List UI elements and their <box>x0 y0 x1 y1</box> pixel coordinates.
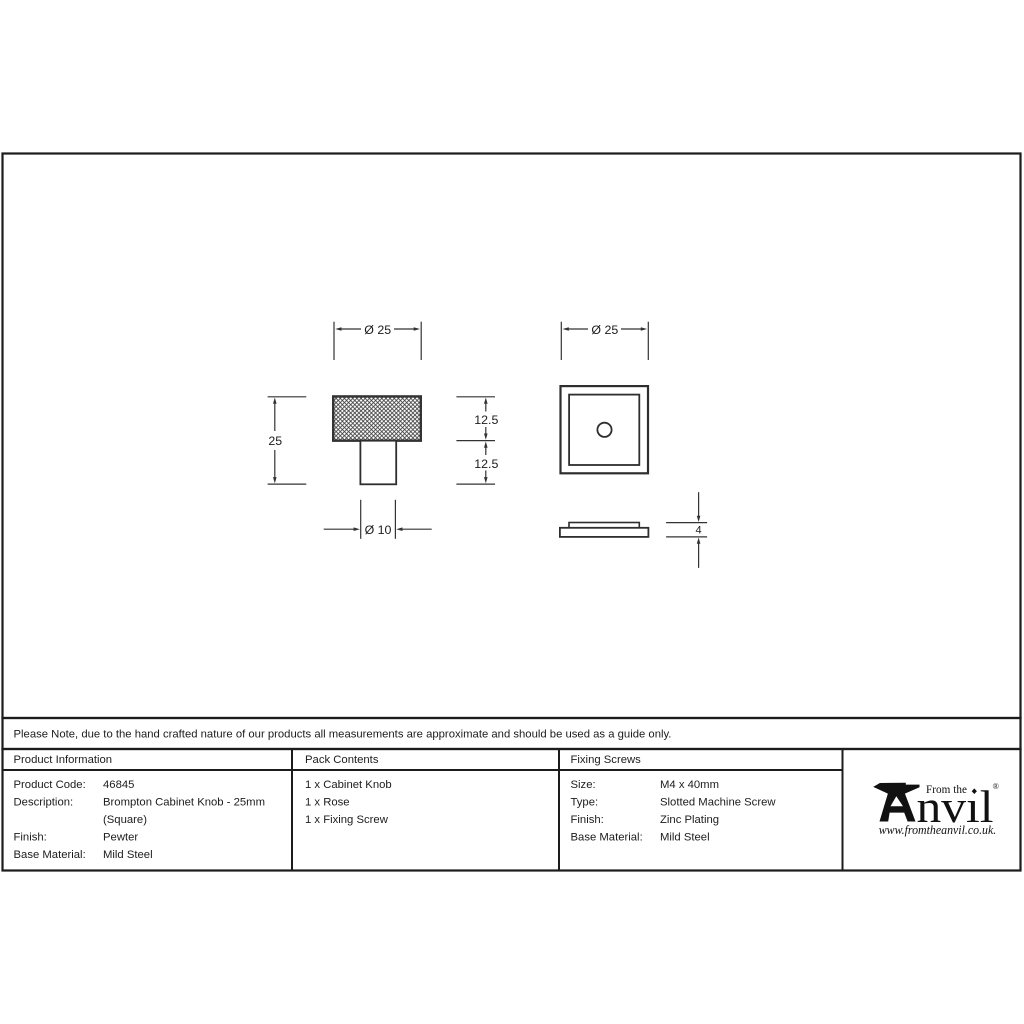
svg-text:Size:: Size: <box>571 779 596 791</box>
svg-text:Fixing Screws: Fixing Screws <box>571 754 642 766</box>
svg-text:1 x Rose: 1 x Rose <box>305 797 350 809</box>
svg-text:Mild Steel: Mild Steel <box>103 849 153 861</box>
svg-text:Description:: Description: <box>14 797 74 809</box>
svg-text:Finish:: Finish: <box>571 814 604 826</box>
svg-text:12.5: 12.5 <box>474 413 498 427</box>
svg-text:www.fromtheanvil.co.uk.: www.fromtheanvil.co.uk. <box>879 823 997 837</box>
svg-text:Type:: Type: <box>571 797 599 809</box>
svg-text:®: ® <box>993 781 1000 791</box>
svg-text:Base Material:: Base Material: <box>14 849 86 861</box>
svg-text:Mild Steel: Mild Steel <box>660 832 710 844</box>
svg-text:Please Note, due to the hand c: Please Note, due to the hand crafted nat… <box>14 729 672 741</box>
svg-text:25: 25 <box>268 434 282 448</box>
svg-text:Ø 25: Ø 25 <box>591 323 618 337</box>
svg-text:4: 4 <box>696 524 702 536</box>
svg-text:M4 x 40mm: M4 x 40mm <box>660 779 719 791</box>
svg-text:Pewter: Pewter <box>103 832 138 844</box>
svg-text:Finish:: Finish: <box>14 832 47 844</box>
svg-text:Product Information: Product Information <box>14 754 113 766</box>
svg-text:Ø 25: Ø 25 <box>364 323 391 337</box>
svg-text:46845: 46845 <box>103 779 134 791</box>
svg-text:1 x Fixing Screw: 1 x Fixing Screw <box>305 814 389 826</box>
svg-text:Pack Contents: Pack Contents <box>305 754 379 766</box>
svg-text:Slotted Machine Screw: Slotted Machine Screw <box>660 797 776 809</box>
svg-text:Base Material:: Base Material: <box>571 832 643 844</box>
svg-text:(Square): (Square) <box>103 814 147 826</box>
svg-text:Ø 10: Ø 10 <box>365 523 392 537</box>
svg-text:Product Code:: Product Code: <box>14 779 86 791</box>
svg-text:1 x Cabinet Knob: 1 x Cabinet Knob <box>305 779 392 791</box>
svg-text:12.5: 12.5 <box>474 457 498 471</box>
svg-text:Zinc Plating: Zinc Plating <box>660 814 719 826</box>
svg-text:Brompton Cabinet Knob - 25mm: Brompton Cabinet Knob - 25mm <box>103 797 265 809</box>
